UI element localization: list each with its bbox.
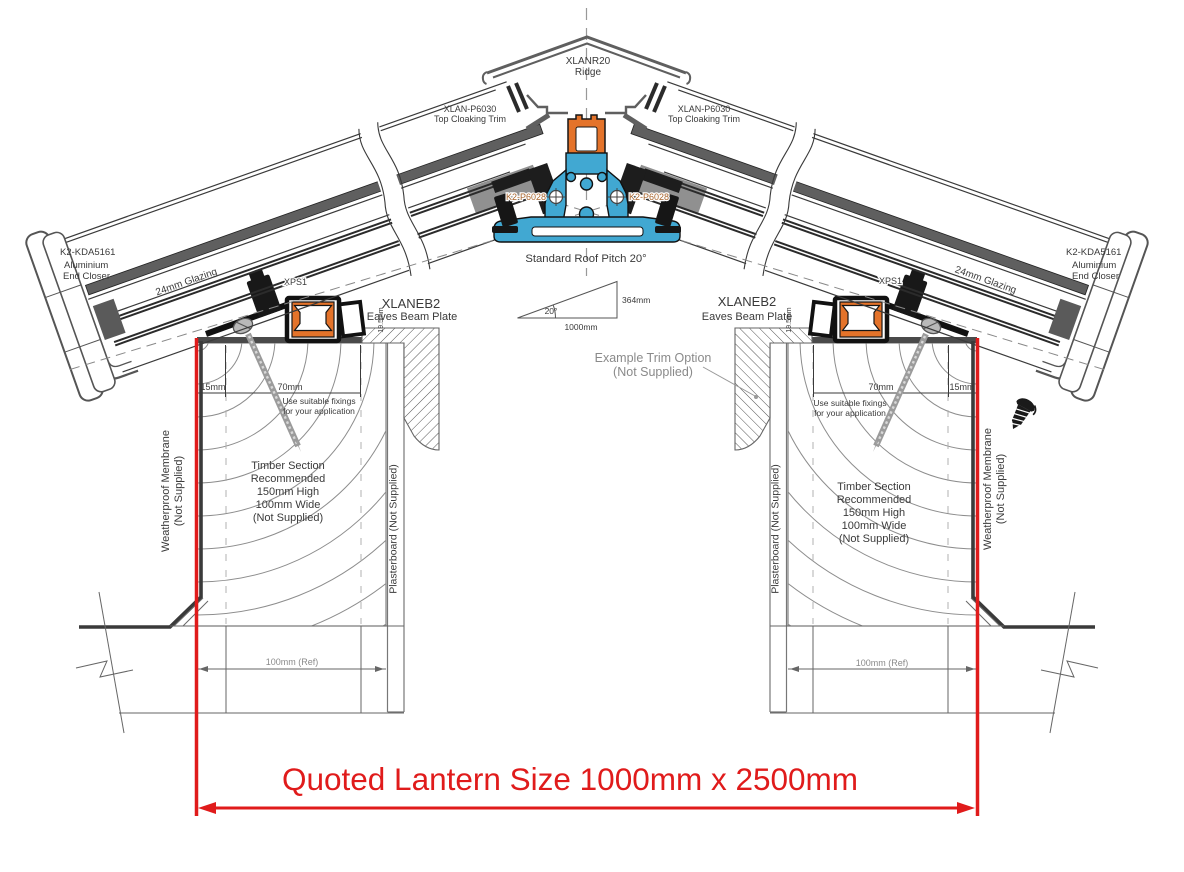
svg-text:70mm: 70mm <box>277 382 302 392</box>
svg-text:Use suitable fixings: Use suitable fixings <box>813 398 886 408</box>
svg-text:K2-KDA5161: K2-KDA5161 <box>1066 247 1121 258</box>
svg-text:100mm (Ref): 100mm (Ref) <box>266 657 319 667</box>
svg-text:150mm High: 150mm High <box>257 486 319 498</box>
svg-text:Plasterboard (Not Supplied): Plasterboard (Not Supplied) <box>770 464 782 594</box>
svg-text:(Not Supplied): (Not Supplied) <box>173 456 185 526</box>
svg-text:150mm High: 150mm High <box>843 507 905 519</box>
svg-text:(Not Supplied): (Not Supplied) <box>839 533 909 545</box>
svg-text:Recommended: Recommended <box>251 473 326 485</box>
svg-text:Top Cloaking Trim: Top Cloaking Trim <box>668 114 740 124</box>
svg-text:(Not Supplied): (Not Supplied) <box>613 365 693 379</box>
svg-text:K2-KDA5161: K2-KDA5161 <box>60 247 115 258</box>
svg-text:Standard Roof Pitch 20°: Standard Roof Pitch 20° <box>525 253 646 265</box>
svg-text:XLANEB2: XLANEB2 <box>382 296 441 311</box>
svg-text:70mm: 70mm <box>868 382 893 392</box>
svg-text:19.5mm: 19.5mm <box>378 307 385 332</box>
svg-text:19.5mm: 19.5mm <box>786 307 793 332</box>
svg-text:1000mm: 1000mm <box>564 322 597 332</box>
svg-text:XLAN-P6030: XLAN-P6030 <box>444 104 497 114</box>
svg-text:Plasterboard (Not Supplied): Plasterboard (Not Supplied) <box>388 464 400 594</box>
svg-text:Weatherproof Membrane: Weatherproof Membrane <box>982 428 994 550</box>
svg-text:Ridge: Ridge <box>575 67 602 78</box>
svg-text:Eaves Beam Plate: Eaves Beam Plate <box>702 311 793 323</box>
svg-text:XLAN-P6030: XLAN-P6030 <box>678 104 731 114</box>
svg-text:for your application: for your application <box>814 408 886 418</box>
svg-text:20°: 20° <box>545 306 558 316</box>
svg-text:End Closer: End Closer <box>63 271 110 282</box>
svg-text:Timber Section: Timber Section <box>837 481 911 493</box>
svg-text:XLANR20: XLANR20 <box>566 56 611 67</box>
svg-text:(Not Supplied): (Not Supplied) <box>253 512 323 524</box>
svg-text:K2-P6028: K2-P6028 <box>506 192 546 202</box>
svg-text:15mm: 15mm <box>200 382 225 392</box>
svg-text:Aluminium: Aluminium <box>64 260 108 271</box>
svg-text:Recommended: Recommended <box>837 494 912 506</box>
svg-text:for your application: for your application <box>283 406 355 416</box>
svg-text:End Closer: End Closer <box>1072 271 1119 282</box>
svg-text:364mm: 364mm <box>622 295 650 305</box>
svg-text:Top Cloaking Trim: Top Cloaking Trim <box>434 114 506 124</box>
svg-text:XPS1: XPS1 <box>284 277 307 287</box>
svg-text:Weatherproof Membrane: Weatherproof Membrane <box>160 430 172 552</box>
svg-text:(Not Supplied): (Not Supplied) <box>995 454 1007 524</box>
svg-text:Aluminium: Aluminium <box>1072 260 1116 271</box>
svg-text:100mm Wide: 100mm Wide <box>842 520 907 532</box>
svg-text:XPS1: XPS1 <box>879 276 902 286</box>
svg-text:Timber Section: Timber Section <box>251 460 325 472</box>
svg-text:100mm (Ref): 100mm (Ref) <box>856 658 909 668</box>
svg-text:Use suitable fixings: Use suitable fixings <box>282 396 355 406</box>
svg-text:Quoted Lantern Size 1000mm x 2: Quoted Lantern Size 1000mm x 2500mm <box>282 761 858 797</box>
svg-text:100mm Wide: 100mm Wide <box>256 499 321 511</box>
svg-text:Example Trim Option: Example Trim Option <box>595 351 712 365</box>
svg-text:K2-P6028: K2-P6028 <box>629 192 669 202</box>
svg-text:15mm: 15mm <box>949 382 974 392</box>
svg-text:XLANEB2: XLANEB2 <box>718 294 777 309</box>
